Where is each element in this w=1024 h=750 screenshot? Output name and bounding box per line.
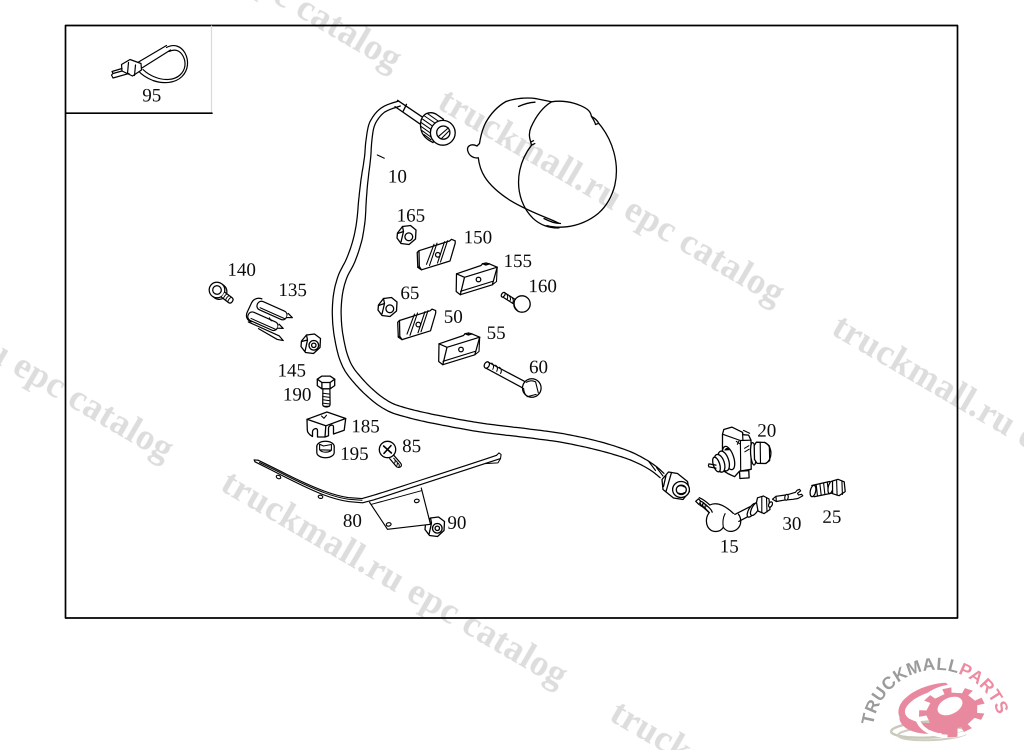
svg-text:145: 145 — [277, 360, 306, 381]
svg-text:135: 135 — [278, 280, 307, 301]
svg-text:65: 65 — [400, 283, 419, 304]
svg-text:60: 60 — [529, 357, 548, 378]
svg-text:95: 95 — [142, 85, 161, 106]
svg-text:30: 30 — [782, 514, 801, 535]
svg-text:50: 50 — [444, 307, 463, 328]
svg-text:160: 160 — [528, 276, 557, 297]
svg-text:150: 150 — [464, 227, 493, 248]
svg-text:20: 20 — [757, 421, 776, 442]
svg-text:15: 15 — [720, 536, 739, 557]
svg-text:10: 10 — [388, 166, 407, 187]
svg-text:25: 25 — [822, 507, 841, 528]
svg-text:90: 90 — [447, 513, 466, 534]
svg-text:190: 190 — [283, 385, 312, 406]
svg-text:140: 140 — [227, 260, 256, 281]
svg-text:55: 55 — [487, 323, 506, 344]
svg-text:155: 155 — [503, 251, 532, 272]
svg-text:85: 85 — [402, 436, 421, 457]
svg-text:165: 165 — [397, 205, 426, 226]
svg-text:80: 80 — [343, 511, 362, 532]
svg-text:185: 185 — [351, 416, 380, 437]
svg-text:195: 195 — [340, 444, 369, 465]
